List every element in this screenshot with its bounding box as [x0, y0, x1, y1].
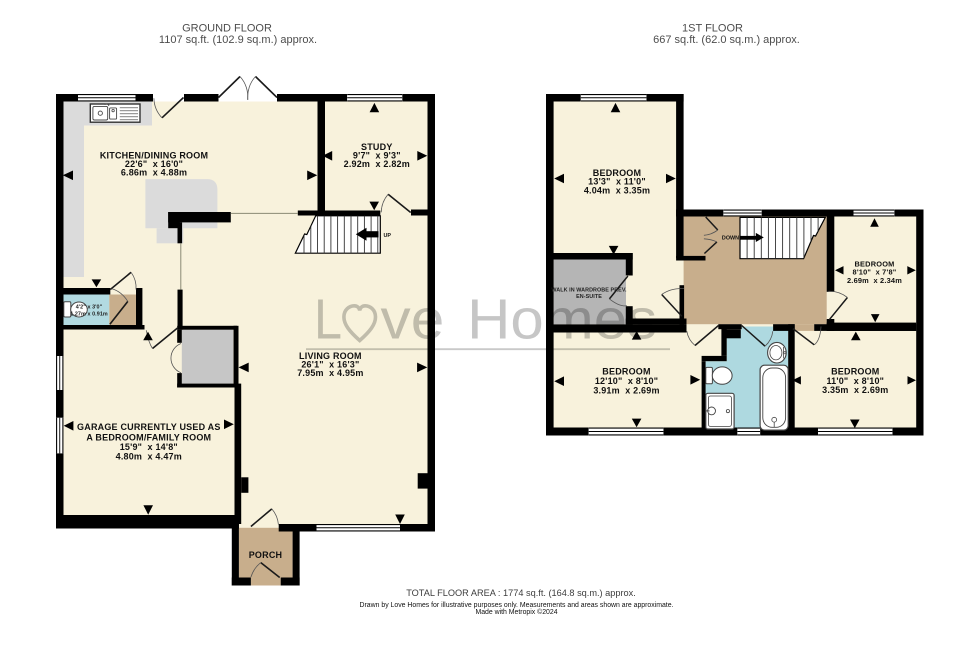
svg-text:UP: UP	[384, 233, 392, 239]
svg-text:4'2" x 3'0": 4'2" x 3'0"	[76, 305, 103, 311]
svg-text:Made with Metropix ©2024: Made with Metropix ©2024	[475, 608, 557, 616]
svg-text:BEDROOM: BEDROOM	[602, 367, 650, 377]
svg-text:ve: ve	[381, 288, 445, 352]
svg-text:2.92m x 2.82m: 2.92m x 2.82m	[344, 159, 410, 169]
svg-text:TOTAL FLOOR AREA : 1774 sq.ft.: TOTAL FLOOR AREA : 1774 sq.ft. (164.8 sq…	[406, 588, 636, 598]
svg-text:2.69m x 2.34m: 2.69m x 2.34m	[847, 276, 902, 285]
svg-text:Homes: Homes	[467, 288, 657, 352]
svg-text:15'9" x 14'8": 15'9" x 14'8"	[120, 442, 178, 452]
svg-text:4.04m x 3.35m: 4.04m x 3.35m	[584, 186, 650, 196]
svg-text:L: L	[314, 288, 342, 352]
svg-text:6.86m x 4.88m: 6.86m x 4.88m	[121, 168, 187, 178]
svg-text:3.35m x 2.69m: 3.35m x 2.69m	[822, 385, 888, 395]
svg-text:GROUND FLOOR: GROUND FLOOR	[182, 23, 272, 35]
svg-text:1ST FLOOR: 1ST FLOOR	[682, 23, 743, 35]
svg-text:A BEDROOM/FAMILY ROOM: A BEDROOM/FAMILY ROOM	[86, 433, 211, 443]
svg-text:PORCH: PORCH	[249, 550, 283, 560]
svg-text:1.27m x 0.91m: 1.27m x 0.91m	[70, 311, 108, 317]
svg-text:667 sq.ft. (62.0 sq.m.) approx: 667 sq.ft. (62.0 sq.m.) approx.	[653, 34, 800, 46]
svg-text:1107 sq.ft. (102.9 sq.m.) appr: 1107 sq.ft. (102.9 sq.m.) approx.	[159, 34, 317, 46]
svg-text:DOWN: DOWN	[722, 236, 739, 242]
svg-text:Drawn by Love Homes for illust: Drawn by Love Homes for illustrative pur…	[360, 602, 674, 609]
svg-text:4.80m x 4.47m: 4.80m x 4.47m	[116, 452, 182, 462]
svg-text:3.91m x 2.69m: 3.91m x 2.69m	[593, 386, 659, 396]
svg-text:BEDROOM: BEDROOM	[831, 366, 879, 376]
svg-text:12'10" x 8'10": 12'10" x 8'10"	[595, 376, 658, 386]
svg-text:GARAGE CURRENTLY USED AS: GARAGE CURRENTLY USED AS	[77, 422, 221, 432]
svg-text:7.95m x 4.95m: 7.95m x 4.95m	[297, 368, 363, 378]
